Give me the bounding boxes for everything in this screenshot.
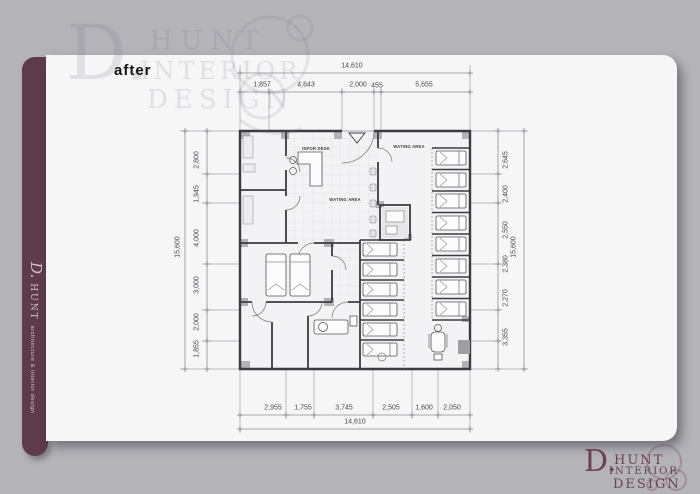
dim-left-seg: 2,000: [194, 313, 201, 331]
dim-bottom-seg: 2,505: [382, 405, 400, 412]
dim-left-overall: 15,600: [175, 236, 182, 257]
dim-right-overall: 15,600: [511, 236, 518, 257]
dim-right-seg: 2,400: [503, 185, 510, 203]
dim-top-seg: 1,857: [253, 82, 271, 89]
dim-right-seg: 3,355: [503, 328, 510, 346]
footer-logo-word3: DESIGN: [613, 477, 681, 492]
dim-left-seg: 1,945: [194, 185, 201, 203]
footer-logo-word2: INTERIOR: [609, 466, 679, 477]
waiting-area-top-label: WATING AREA: [393, 144, 425, 149]
dim-bottom-seg: 2,050: [443, 405, 461, 412]
dim-left-seg: 2,800: [194, 151, 201, 169]
dim-top-seg: 455: [371, 83, 383, 90]
dim-right-seg: 2,645: [503, 151, 510, 169]
dim-top-overall: 14,610: [341, 63, 362, 70]
info-desk-label: INFOR DESK: [302, 146, 330, 151]
dim-right-seg: 2,270: [503, 289, 510, 307]
cabinet-block: [458, 340, 470, 354]
dim-top-seg: 2,000: [349, 82, 367, 89]
dim-bottom-seg: 2,955: [264, 405, 282, 412]
page-background: D. HUNT architecture & interior design D…: [0, 0, 700, 494]
equipment-room: [382, 207, 408, 238]
waiting-area-center-label: WATING AREA: [329, 197, 361, 202]
dim-top-seg: 4,643: [297, 82, 315, 89]
dim-left-seg: 1,855: [194, 340, 201, 358]
dim-bottom-seg: 3,745: [335, 405, 353, 412]
dim-right-seg: 2,550: [503, 221, 510, 239]
dim-right-seg: 2,380: [503, 255, 510, 273]
dim-top-seg: 5,655: [415, 82, 433, 89]
after-label: after: [114, 62, 152, 79]
dim-bottom-overall: 14,610: [344, 419, 365, 426]
dim-left-seg: 3,000: [194, 276, 201, 294]
footer-logo: D. HUNT INTERIOR DESIGN: [582, 440, 698, 494]
dim-left-seg: 4,000: [194, 229, 201, 247]
dim-bottom-seg: 1,600: [415, 405, 433, 412]
dim-bottom-seg: 1,755: [294, 405, 312, 412]
